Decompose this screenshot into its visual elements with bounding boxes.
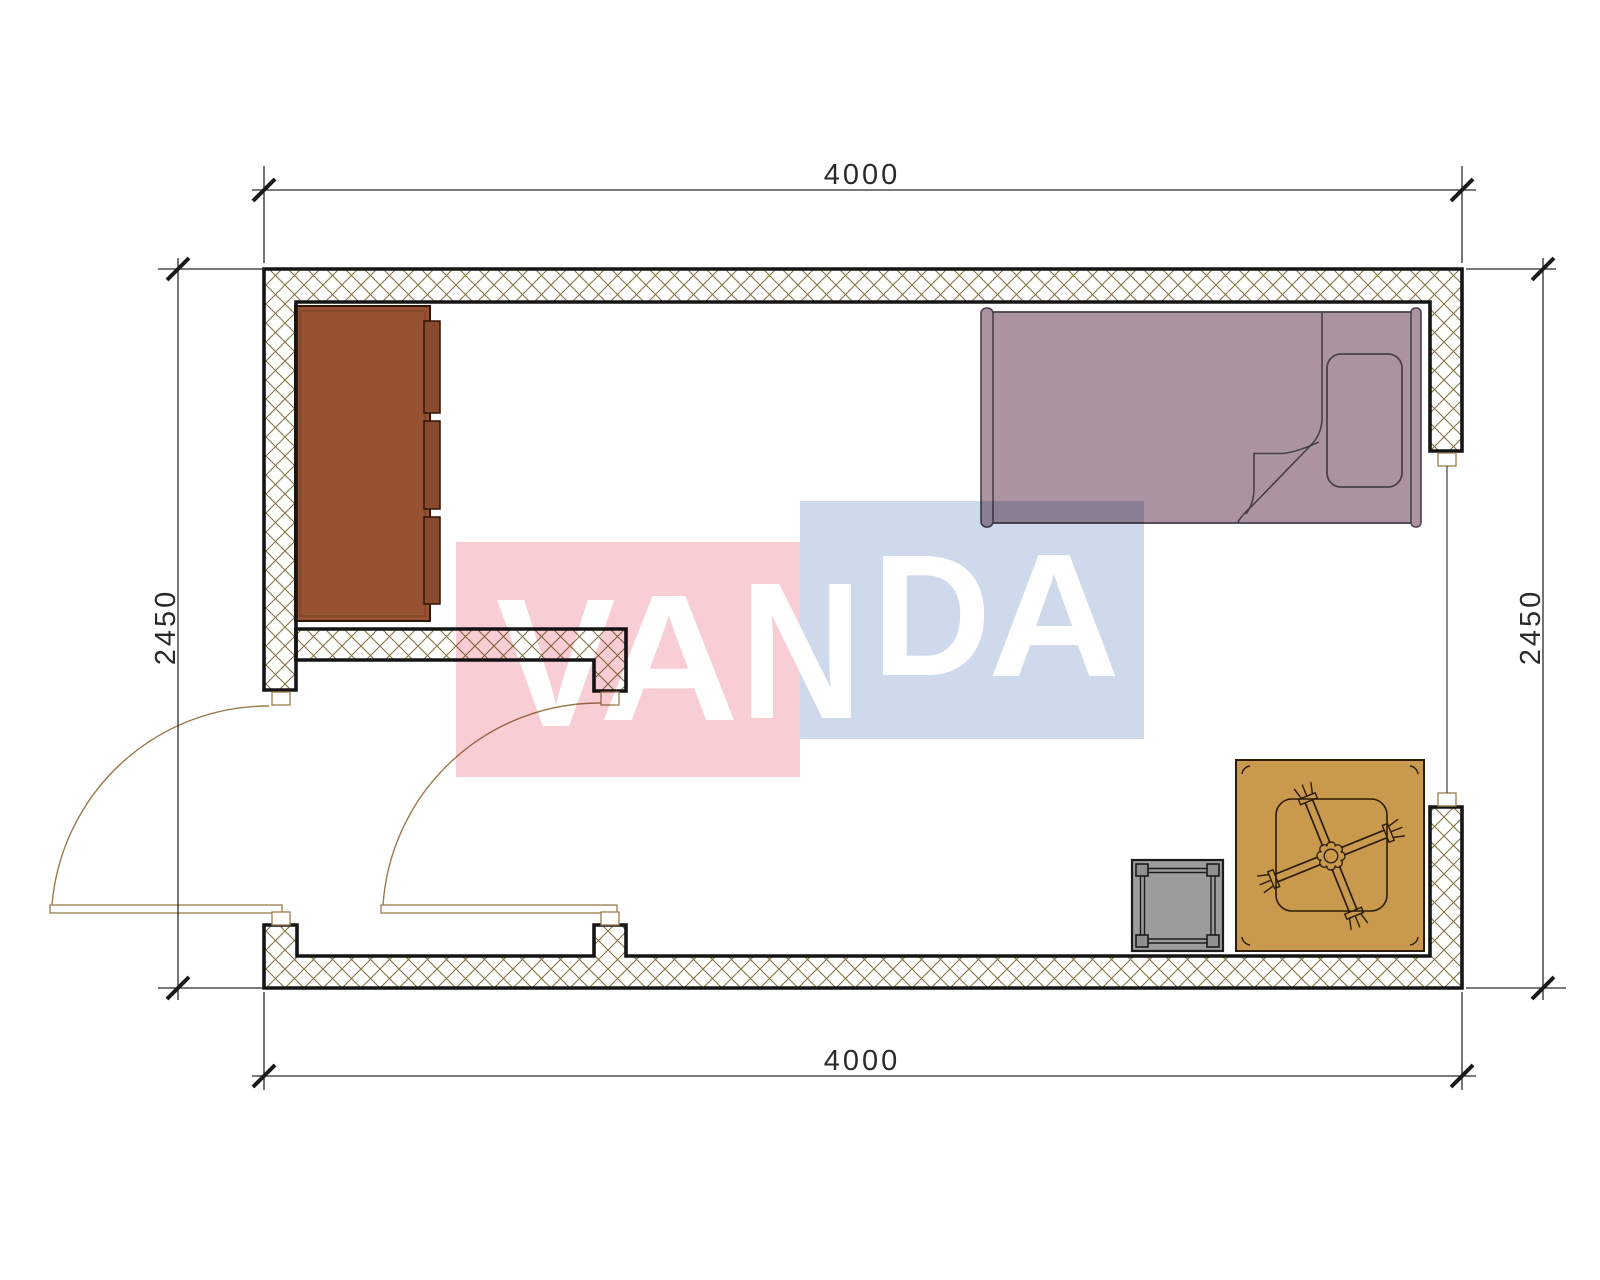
svg-text:2450: 2450 <box>150 589 182 666</box>
svg-text:4000: 4000 <box>824 159 901 191</box>
svg-text:2450: 2450 <box>1515 589 1547 666</box>
svg-text:4000: 4000 <box>824 1045 901 1077</box>
